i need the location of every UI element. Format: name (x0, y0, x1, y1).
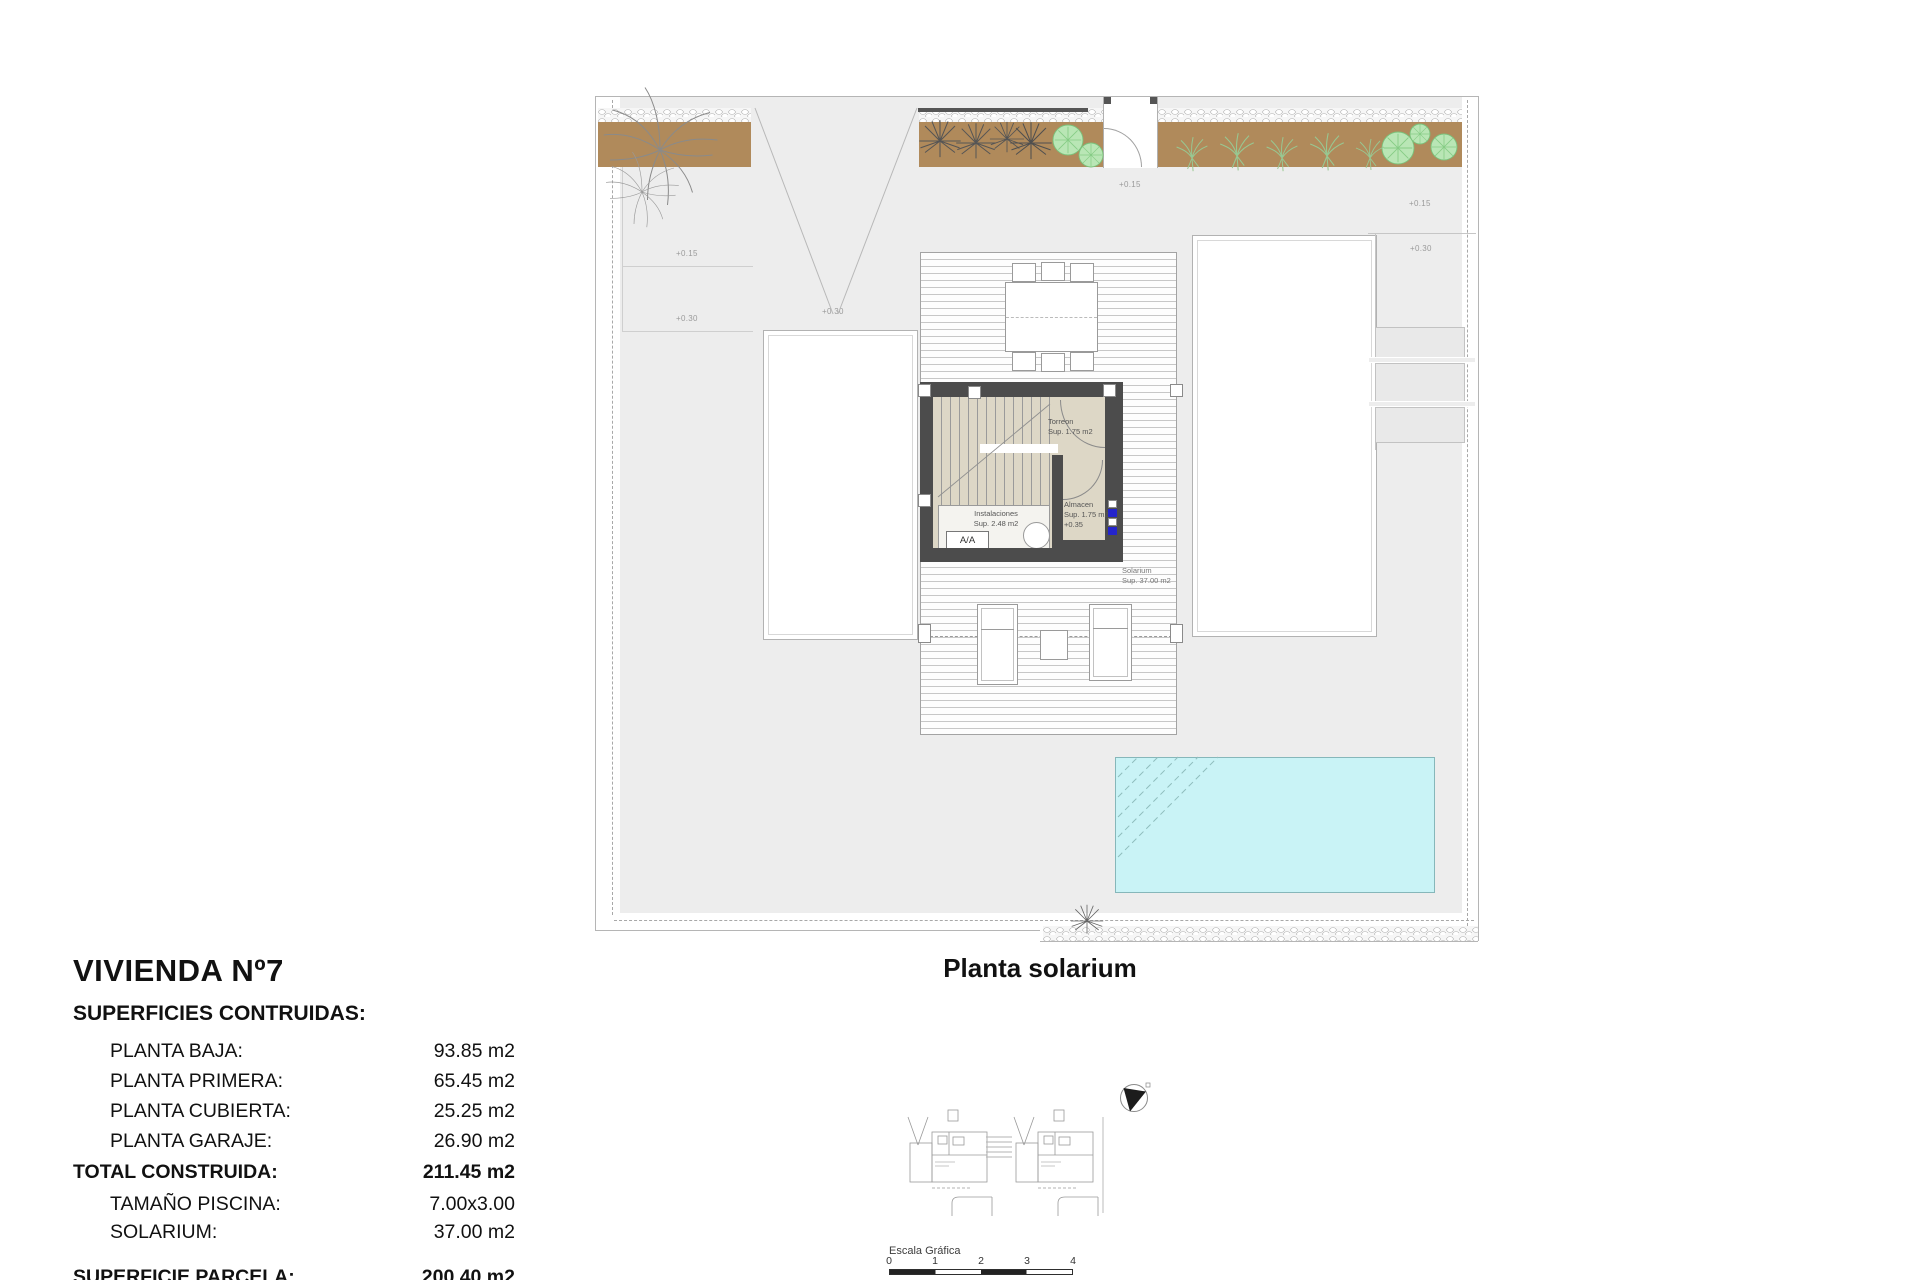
table-centerline (1006, 317, 1097, 318)
surface-row: TAMAÑO PISCINA: 7.00x3.00 (73, 1193, 515, 1216)
chair (1070, 263, 1094, 282)
surface-row: SOLARIUM: 37.00 m2 (73, 1221, 515, 1244)
surface-row-value: 7.00x3.00 (429, 1193, 515, 1216)
chair (1012, 352, 1036, 371)
elevation-mark: +0.15 (676, 249, 698, 258)
parcel-label: SUPERFICIE PARCELA: (73, 1266, 295, 1280)
chair (1012, 263, 1036, 282)
parcel-left-line (595, 96, 596, 930)
elevation-mark: +0.30 (1410, 244, 1432, 253)
chair (1070, 352, 1094, 371)
parcel-bottom-line-left (595, 930, 1040, 931)
key-plan-villa-right (1014, 1110, 1098, 1216)
parcel-bottom-line-right (1040, 941, 1478, 942)
chair (1041, 262, 1065, 281)
core-wall-right (1105, 397, 1123, 562)
instalaciones-area: Sup. 2.48 m2 (950, 519, 1042, 529)
column-marker (1170, 384, 1183, 397)
parcel-row: SUPERFICIE PARCELA: 200.40 m2 (73, 1266, 515, 1280)
north-arrow-icon (1121, 1083, 1151, 1112)
terrace-line-3 (622, 167, 623, 331)
surface-row-label: PLANTA BAJA: (110, 1040, 243, 1062)
scale-bar (889, 1269, 1073, 1275)
column-marker (918, 494, 931, 507)
edge-marker (1170, 624, 1183, 643)
core-wall-mid (1052, 455, 1063, 548)
stair-landing (980, 444, 1058, 453)
torreon-label: Torreon Sup. 1.75 m2 (1048, 417, 1093, 437)
ac-unit-box: A/A (946, 531, 989, 549)
surface-row-value: 25.25 m2 (434, 1100, 515, 1123)
garden-wall-line (918, 108, 1088, 112)
column-marker (968, 386, 981, 399)
parcel-top-line (595, 96, 1478, 97)
surface-row-label: TAMAÑO PISCINA: (110, 1193, 281, 1215)
elevation-mark: +0.15 (1409, 199, 1431, 208)
lounger-inner (1093, 608, 1128, 677)
property-dash-left (612, 100, 613, 915)
sun-lounger (977, 604, 1018, 685)
planting-bed-1 (598, 122, 751, 167)
key-plan-plot-highlighted (889, 1115, 995, 1217)
solarium-label: Solarium Sup. 37.00 m2 (1122, 566, 1171, 586)
torreon-name: Torreon (1048, 417, 1093, 427)
plan-caption: Planta solarium (880, 953, 1200, 984)
dining-table (1005, 282, 1098, 352)
scale-tick: 2 (974, 1255, 988, 1267)
right-area-line (1368, 233, 1476, 234)
walkway-curved-wall (1104, 128, 1142, 167)
column-marker (1103, 384, 1116, 397)
scale-tick: 1 (928, 1255, 942, 1267)
entry-walkway (1103, 97, 1158, 168)
torreon-area: Sup. 1.75 m2 (1048, 427, 1093, 437)
roof-plane-right (1192, 235, 1377, 637)
floor-plan-sheet: +0.15 +0.30 +0.30 +0.15 +0.15 +0.30 A/A (0, 0, 1920, 1280)
key-plan-plot-neighbor (995, 1115, 1101, 1217)
elevation-mark: +0.30 (822, 307, 844, 316)
surface-row-label: SOLARIUM: (110, 1221, 217, 1243)
property-dash-right (1467, 100, 1468, 936)
parcel-value: 200.40 m2 (422, 1266, 515, 1280)
almacen-label: Almacen Sup. 1.75 m2 +0.35 (1064, 500, 1109, 529)
gravel-band-1 (598, 108, 751, 122)
parcel-right-line (1478, 96, 1479, 941)
gravel-band-3 (1158, 108, 1462, 122)
almacen-level: +0.35 (1064, 520, 1109, 530)
side-table (1040, 630, 1068, 660)
service-marker-white (1108, 500, 1117, 508)
surface-row-value: 65.45 m2 (434, 1070, 515, 1093)
elevation-mark: +0.15 (1119, 180, 1141, 189)
step-band-3 (1375, 407, 1465, 443)
surfaces-subtitle: SUPERFICIES CONTRUIDAS: (73, 1002, 366, 1026)
surface-row-label: PLANTA CUBIERTA: (110, 1100, 291, 1122)
lounger-inner (981, 608, 1014, 681)
surface-row-value: 37.00 m2 (434, 1221, 515, 1244)
elevation-mark: +0.30 (676, 314, 698, 323)
solarium-area: Sup. 37.00 m2 (1122, 576, 1171, 586)
core-wall-left (920, 382, 933, 562)
surface-info-panel: VIVIENDA Nº7 SUPERFICIES CONTRUIDAS: PLA… (73, 953, 515, 1280)
lounger-backrest-line (981, 629, 1014, 630)
edge-marker (918, 624, 931, 643)
total-value: 211.45 m2 (423, 1161, 515, 1184)
total-row: TOTAL CONSTRUIDA: 211.45 m2 (73, 1161, 515, 1184)
service-marker-blue (1108, 509, 1117, 517)
surface-row: PLANTA CUBIERTA: 25.25 m2 (73, 1100, 515, 1123)
terrace-line-2 (622, 331, 753, 332)
service-marker-blue (1108, 527, 1117, 535)
surface-row: PLANTA BAJA: 93.85 m2 (73, 1040, 515, 1063)
surface-row: PLANTA GARAJE: 26.90 m2 (73, 1130, 515, 1153)
surface-row: PLANTA PRIMERA: 65.45 m2 (73, 1070, 515, 1093)
villa-title: VIVIENDA Nº7 (73, 953, 284, 989)
surface-row-label: PLANTA PRIMERA: (110, 1070, 283, 1092)
instalaciones-name: Instalaciones (950, 509, 1042, 519)
roof-plane-left-inner (768, 335, 913, 635)
surface-row-label: PLANTA GARAJE: (110, 1130, 272, 1152)
instalaciones-label: Instalaciones Sup. 2.48 m2 (950, 509, 1042, 529)
core-wall-top (920, 382, 1123, 397)
roof-plane-right-inner (1197, 240, 1372, 632)
roof-plane-left (763, 330, 918, 640)
surface-row-value: 26.90 m2 (434, 1130, 515, 1153)
step-band-2 (1375, 363, 1465, 402)
key-plan-party-wall-hatch (986, 1137, 1012, 1157)
door-jamb-right (1150, 97, 1157, 104)
almacen-area: Sup. 1.75 m2 (1064, 510, 1109, 520)
property-dash-bottom (614, 920, 1474, 921)
planting-bed-2 (919, 122, 1103, 167)
core-wall-bottom-left (920, 548, 1052, 562)
key-plan-villa-left (908, 1110, 992, 1216)
scale-title: Escala Gráfica (889, 1245, 961, 1257)
column-marker (918, 384, 931, 397)
almacen-name: Almacen (1064, 500, 1109, 510)
planting-bed-3 (1158, 122, 1462, 167)
scale-tick: 0 (882, 1255, 896, 1267)
step-band-1 (1375, 327, 1465, 358)
sun-lounger (1089, 604, 1132, 681)
service-marker-white (1108, 518, 1117, 526)
door-jamb-left (1104, 97, 1111, 104)
chair (1041, 353, 1065, 372)
solarium-name: Solarium (1122, 566, 1171, 576)
terrace-line-1 (622, 266, 753, 267)
surface-row-value: 93.85 m2 (434, 1040, 515, 1063)
scale-tick: 3 (1020, 1255, 1034, 1267)
lounger-backrest-line (1093, 628, 1128, 629)
core-wall-bottom-right (1052, 540, 1105, 562)
scale-tick: 4 (1066, 1255, 1080, 1267)
swimming-pool (1115, 757, 1435, 893)
total-label: TOTAL CONSTRUIDA: (73, 1161, 278, 1183)
gravel-strip-bottom (1043, 926, 1478, 941)
